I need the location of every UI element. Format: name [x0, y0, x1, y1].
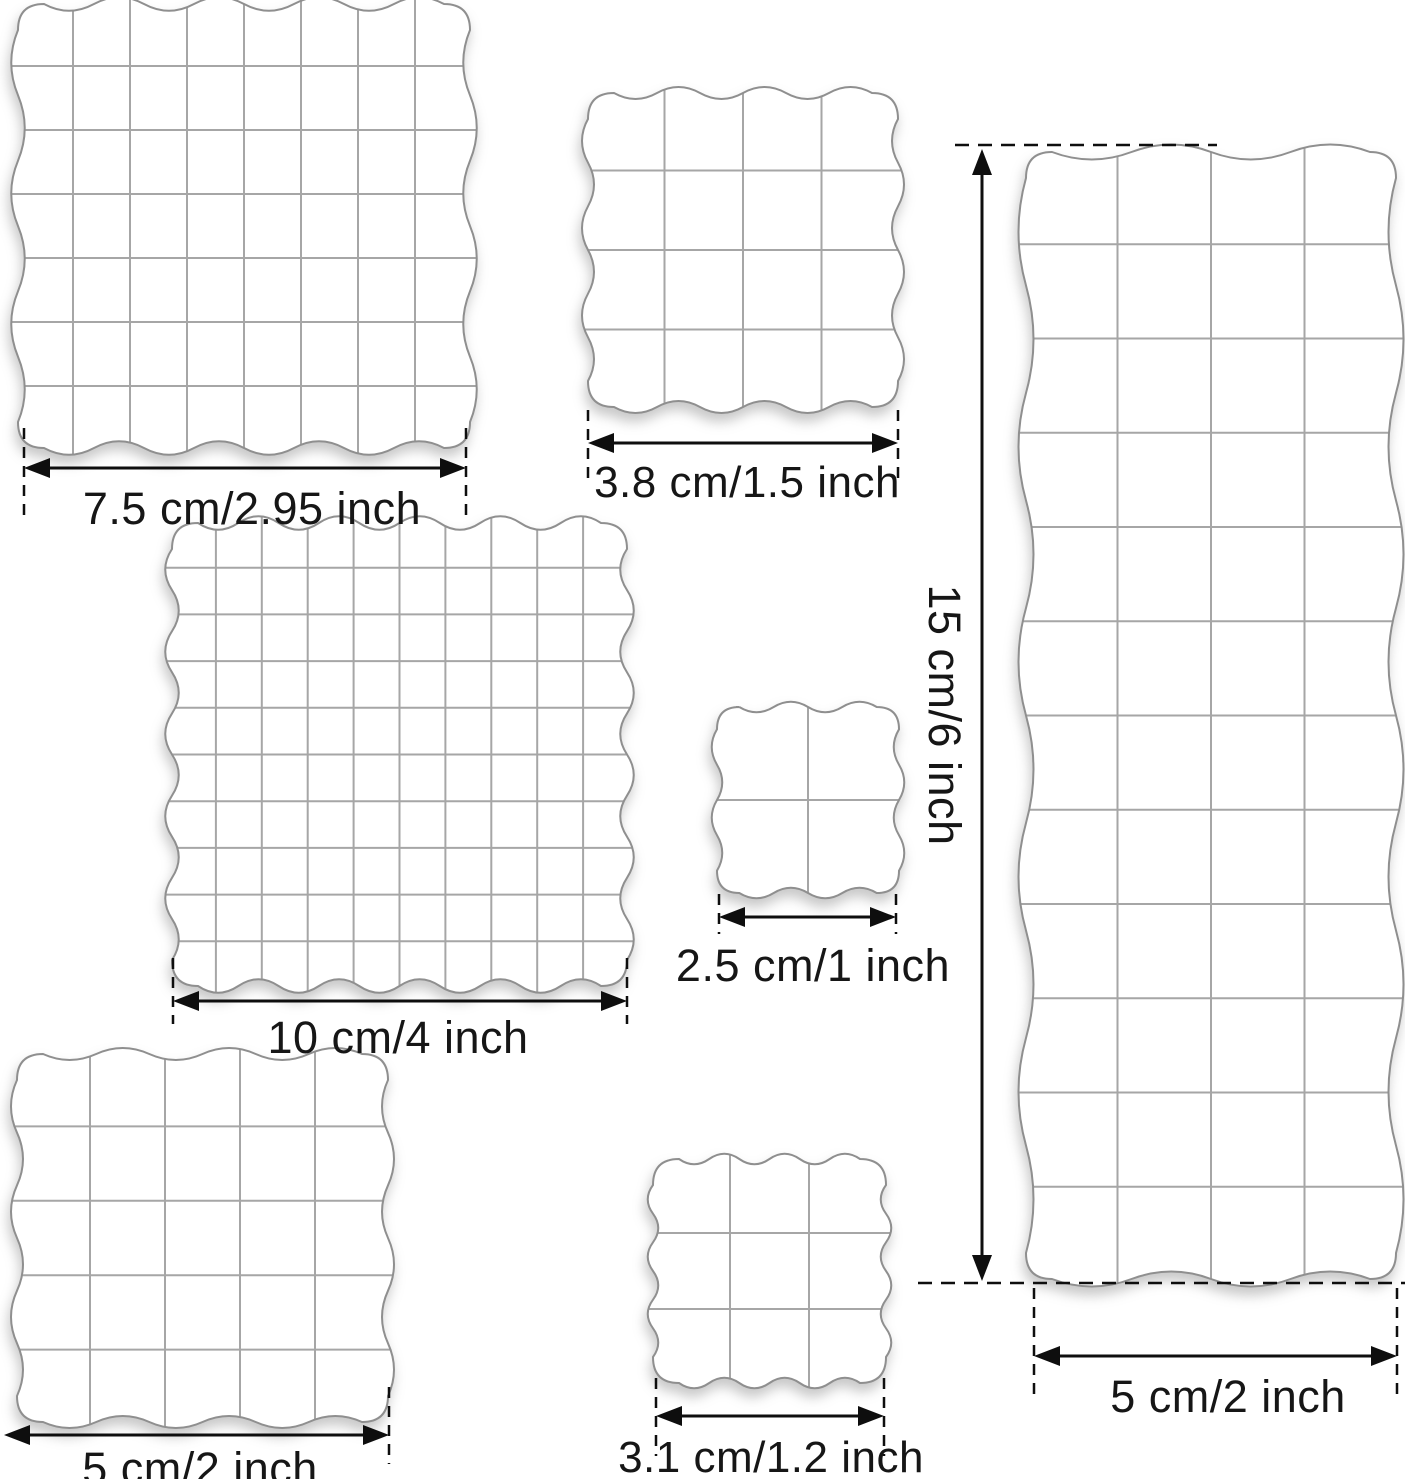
arrowhead-right-icon: [858, 1406, 884, 1426]
dim-10-cm: [173, 958, 627, 1024]
dim-15-cm: [918, 145, 1405, 1283]
arrowhead-down-icon: [972, 1255, 992, 1281]
arrowhead-left-icon: [656, 1406, 682, 1426]
arrowhead-right-icon: [870, 907, 896, 927]
stamp-blocks-diagram: 7.5 cm/2.95 inch3.8 cm/1.5 inch10 cm/4 i…: [0, 0, 1405, 1479]
dim-2-5-cm: [719, 894, 896, 934]
arrowhead-right-icon: [440, 458, 466, 478]
arrowhead-right-icon: [601, 991, 627, 1011]
dim-3-1-cm: [656, 1378, 884, 1456]
arrowhead-left-icon: [24, 458, 50, 478]
arrowhead-left-icon: [588, 433, 614, 453]
arrowhead-right-icon: [872, 433, 898, 453]
arrowhead-right-icon: [1371, 1346, 1397, 1366]
arrowhead-left-icon: [173, 991, 199, 1011]
arrowhead-left-icon: [4, 1425, 30, 1445]
arrowhead-right-icon: [363, 1425, 389, 1445]
dim-3-8-cm: [588, 410, 898, 482]
arrowhead-up-icon: [972, 149, 992, 175]
dimension-overlay: [0, 0, 1405, 1479]
dim-7-5-cm: [24, 428, 466, 518]
arrowhead-left-icon: [719, 907, 745, 927]
dim-5-cm-left: [4, 1387, 389, 1464]
arrowhead-left-icon: [1034, 1346, 1060, 1366]
dim-5-cm-right: [1034, 1288, 1397, 1400]
